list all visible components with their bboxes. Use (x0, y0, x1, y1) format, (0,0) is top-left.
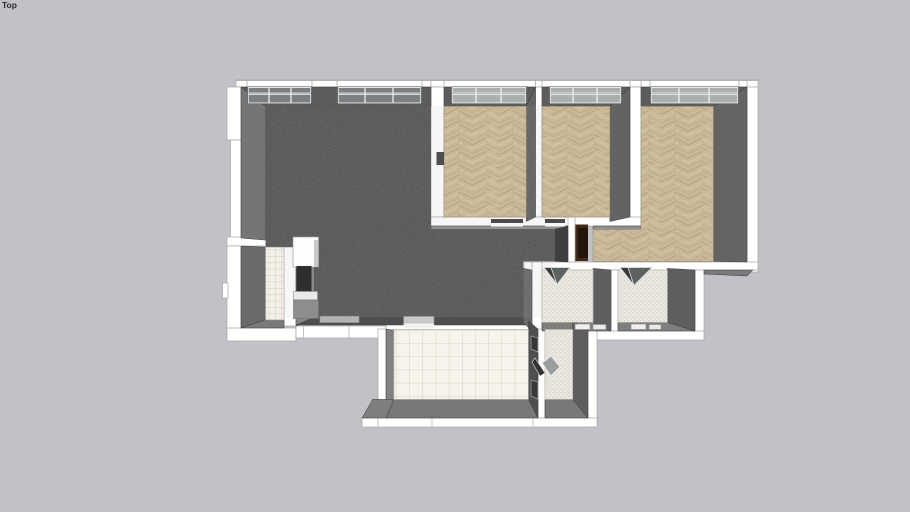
svg-text:Top: Top (2, 0, 17, 10)
